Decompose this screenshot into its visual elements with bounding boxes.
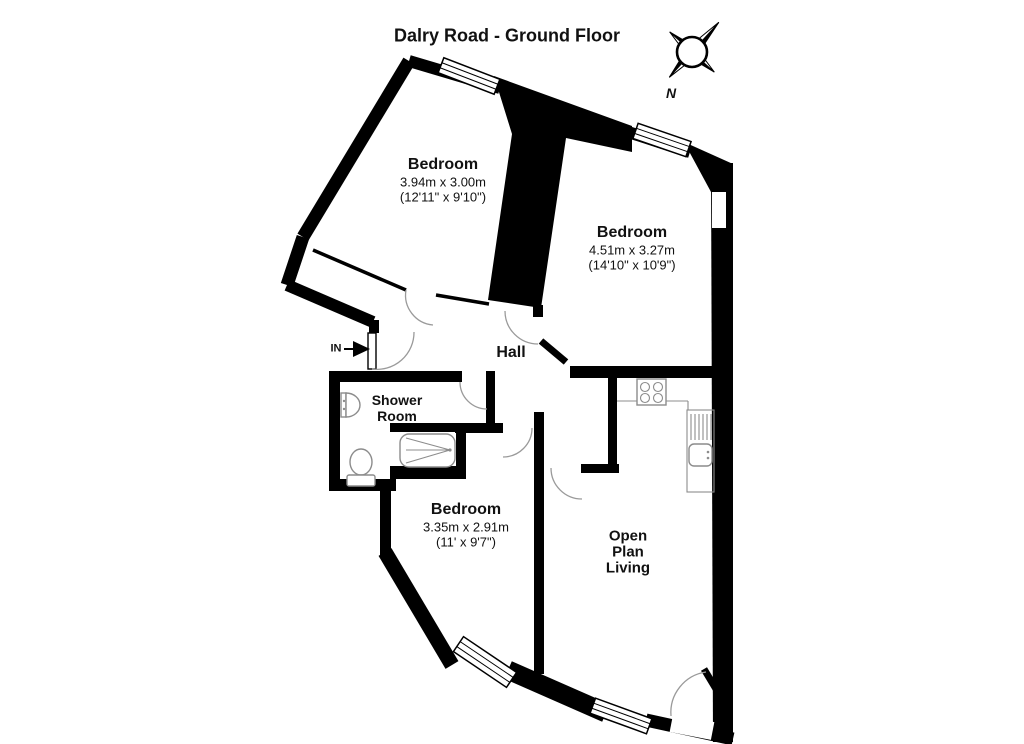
room-label-open-plan-living-line1: Open <box>609 527 647 544</box>
floor-plan-drawing <box>0 0 1024 744</box>
room-label-bedroom-bottom: Bedroom <box>431 501 501 519</box>
window <box>438 58 500 94</box>
hob-icon <box>637 379 666 405</box>
room-label-hall: Hall <box>496 344 525 362</box>
room-label-bedroom-top-right: Bedroom <box>597 224 667 242</box>
room-size-imperial-bedroom-top-left: (12'11" x 9'10") <box>400 191 486 206</box>
entrance-label: IN <box>331 343 342 356</box>
entrance-door <box>368 333 376 369</box>
basin-icon <box>341 393 360 417</box>
room-label-open-plan-living-line2: Plan <box>612 543 644 560</box>
room-label-open-plan-living-line3: Living <box>606 559 650 576</box>
kitchen-sink-icon <box>689 414 712 466</box>
window <box>590 698 652 734</box>
room-size-metric-bedroom-top-right: 4.51m x 3.27m <box>589 244 675 259</box>
compass-north-label: N <box>666 85 676 101</box>
floor-plan-page: Dalry Road - Ground Floor N IN Bedroom 3… <box>0 0 1024 744</box>
room-size-metric-bedroom-bottom: 3.35m x 2.91m <box>423 521 509 536</box>
compass-icon <box>669 22 719 77</box>
room-label-shower-room-line1: Shower <box>372 392 423 408</box>
room-size-metric-bedroom-top-left: 3.94m x 3.00m <box>400 176 486 191</box>
toilet-icon <box>347 449 375 486</box>
entrance-arrow-icon <box>344 341 370 357</box>
page-title: Dalry Road - Ground Floor <box>394 26 620 47</box>
room-size-imperial-bedroom-bottom: (11' x 9'7") <box>436 536 496 551</box>
interior-walls <box>313 250 714 674</box>
window <box>453 637 516 688</box>
room-size-imperial-bedroom-top-right: (14'10" x 10'9") <box>588 259 675 274</box>
patio-door <box>670 669 716 740</box>
room-label-shower-room-line2: Room <box>377 408 417 424</box>
shower-tray-icon <box>400 434 455 467</box>
window <box>633 123 691 156</box>
room-label-bedroom-top-left: Bedroom <box>408 156 478 174</box>
